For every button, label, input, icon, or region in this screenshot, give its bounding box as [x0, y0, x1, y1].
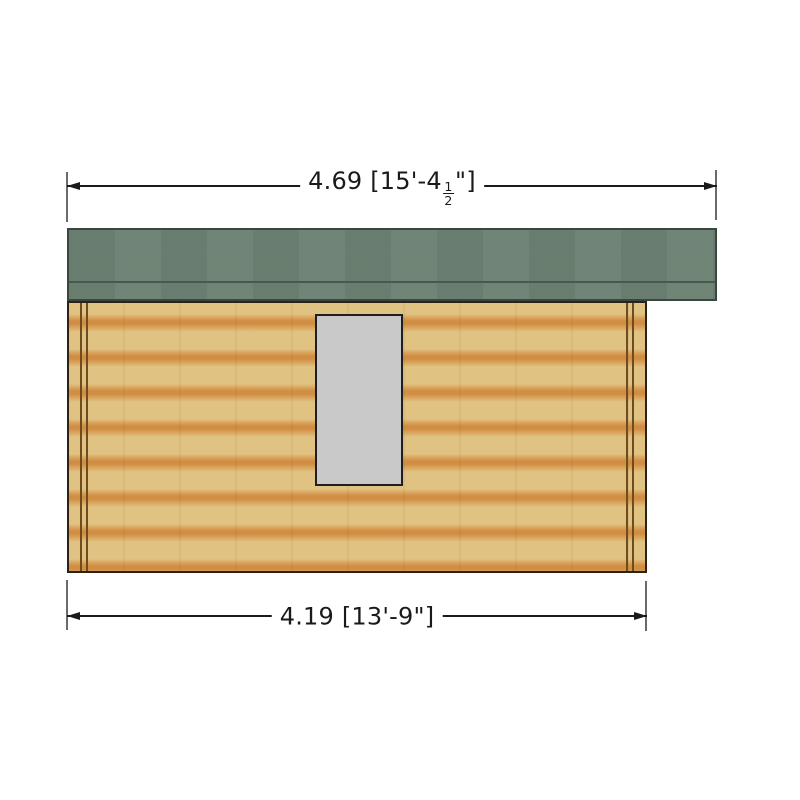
top-extension-line-right [715, 170, 717, 220]
roof-fascia-line [69, 281, 715, 283]
corner-trim-left-outer [80, 303, 82, 571]
bottom-dimension-imperial: [13'-9"] [342, 603, 434, 631]
elevation-drawing: 4.69 [15'-412"] 4.19 [13'-9"] [0, 0, 800, 800]
top-dimension-arrow-left [67, 182, 80, 190]
top-dimension-imperial-prefix: [15'-4 [370, 167, 442, 195]
bottom-dimension-arrow-right [634, 612, 647, 620]
bottom-dimension-metric: 4.19 [280, 603, 334, 631]
bottom-dimension-arrow-left [67, 612, 80, 620]
corner-trim-right-outer [632, 303, 634, 571]
bottom-extension-line-left [66, 580, 68, 630]
top-dimension-metric: 4.69 [308, 167, 362, 195]
roof [67, 228, 717, 301]
top-dimension-label: 4.69 [15'-412"] [300, 167, 484, 207]
top-dimension-imperial-suffix: "] [455, 167, 476, 195]
top-extension-line-left [66, 172, 68, 222]
top-dimension-arrow-right [704, 182, 717, 190]
bottom-extension-line-right [645, 581, 647, 631]
corner-trim-right-inner [626, 303, 628, 571]
bottom-dimension-label: 4.19 [13'-9"] [272, 603, 443, 632]
window [315, 314, 403, 486]
corner-trim-left-inner [86, 303, 88, 571]
wall [67, 301, 647, 573]
top-dimension-fraction: 12 [443, 180, 454, 207]
